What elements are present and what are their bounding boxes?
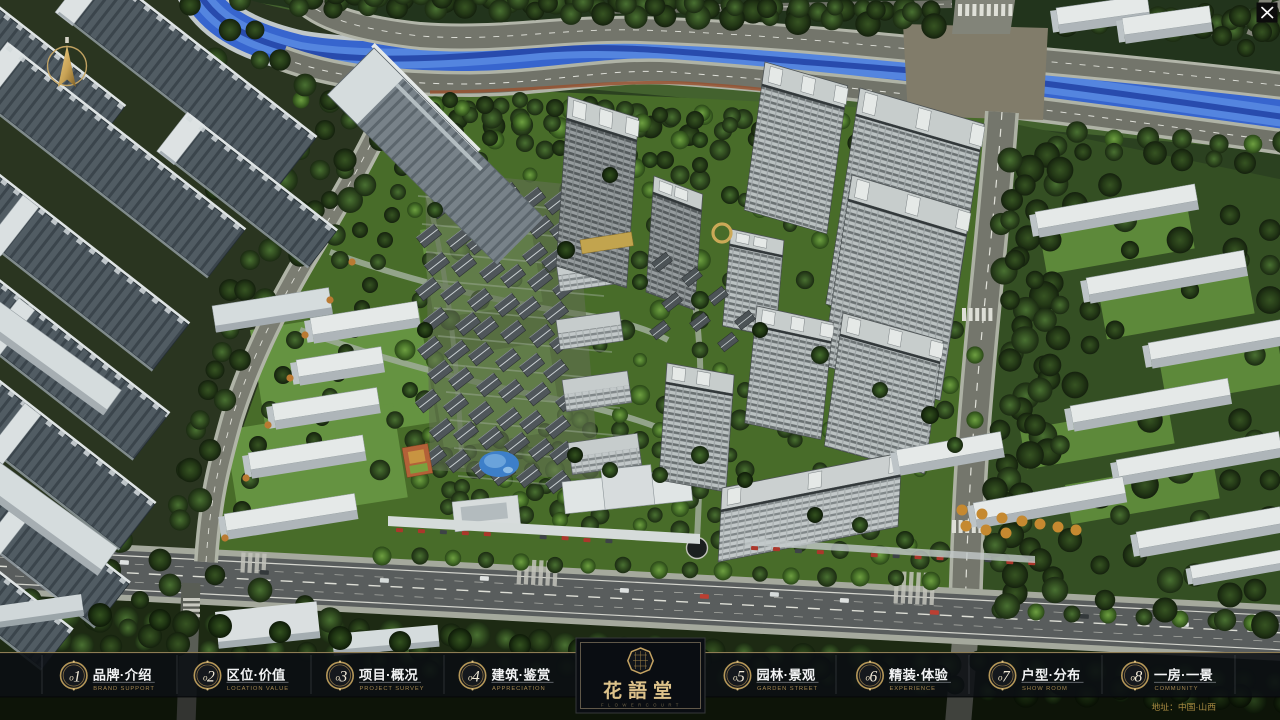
svg-text:3: 3 bbox=[339, 669, 348, 686]
svg-text:一房·一景: 一房·一景 bbox=[1154, 667, 1213, 683]
svg-text:区位·价值: 区位·价值 bbox=[227, 667, 286, 683]
svg-text:7: 7 bbox=[1002, 669, 1011, 686]
svg-text:2: 2 bbox=[207, 669, 215, 686]
svg-text:LOCATION VALUE: LOCATION VALUE bbox=[227, 686, 289, 692]
svg-text:8: 8 bbox=[1135, 669, 1143, 686]
svg-text:BRAND SUPPORT: BRAND SUPPORT bbox=[93, 686, 155, 692]
svg-text:6: 6 bbox=[870, 669, 878, 686]
svg-text:SHOW ROOM: SHOW ROOM bbox=[1022, 686, 1068, 692]
svg-text:项目·概况: 项目·概况 bbox=[359, 667, 419, 683]
svg-text:花語堂: 花語堂 bbox=[603, 679, 678, 702]
svg-text:F L O W E R C O U R T: F L O W E R C O U R T bbox=[601, 703, 680, 708]
svg-text:PROJECT SURVEY: PROJECT SURVEY bbox=[360, 686, 425, 692]
svg-text:APPRECIATION: APPRECIATION bbox=[492, 686, 546, 692]
svg-text:户型·分布: 户型·分布 bbox=[1022, 667, 1081, 683]
svg-text:COMMUNITY: COMMUNITY bbox=[1155, 686, 1199, 692]
svg-text:园林·景观: 园林·景观 bbox=[757, 667, 817, 683]
svg-text:4: 4 bbox=[472, 669, 480, 686]
svg-text:地址：中国·山西: 地址：中国·山西 bbox=[1151, 701, 1216, 712]
svg-text:品牌·介绍: 品牌·介绍 bbox=[93, 667, 152, 683]
svg-text:1: 1 bbox=[73, 669, 81, 686]
svg-text:GARDEN STREET: GARDEN STREET bbox=[757, 686, 818, 692]
svg-text:精装·体验: 精装·体验 bbox=[889, 667, 949, 683]
svg-text:5: 5 bbox=[737, 669, 745, 686]
svg-text:建筑·鉴赏: 建筑·鉴赏 bbox=[492, 667, 551, 683]
svg-text:EXPERIENCE: EXPERIENCE bbox=[890, 686, 936, 692]
